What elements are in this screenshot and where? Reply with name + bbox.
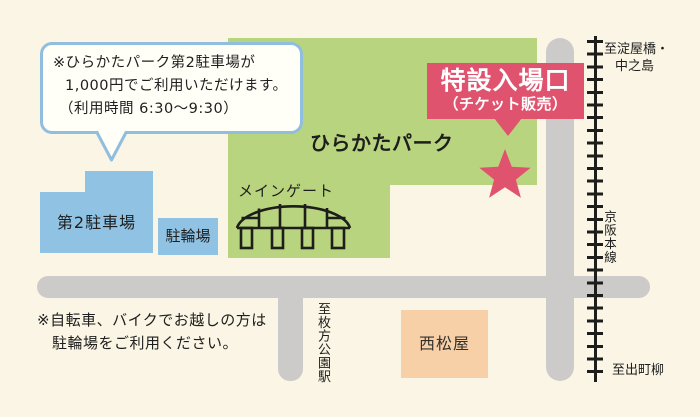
direction-north-line1: 至淀屋橋・	[604, 41, 669, 58]
bubble-line2: 1,000円でご利用いただけます。	[53, 75, 300, 98]
station-direction-label: 至枚方公園駅	[313, 302, 332, 383]
special-entrance-subtitle: （チケット販売）	[427, 96, 584, 113]
road-to-station	[278, 284, 303, 381]
direction-north-line2: 中之島	[604, 58, 669, 75]
bicycle-note-line1: ※自転車、バイクでお越しの方は	[37, 309, 267, 332]
special-entrance-badge: 特設入場口 （チケット販売）	[427, 63, 584, 119]
main-gate-label: メインゲート	[238, 180, 334, 201]
bicycle-note-text: ※自転車、バイクでお越しの方は 駐輪場をご利用ください。	[37, 309, 267, 355]
railway-name-label: 京阪本線	[600, 210, 619, 264]
store-name-label: 西松屋	[401, 310, 488, 378]
bicycle-parking-label: 駐輪場	[158, 218, 218, 255]
bubble-line3: （利用時間 6:30～9:30）	[53, 98, 300, 121]
parking-note-bubble: ※ひらかたパーク第2駐車場が 1,000円でご利用いただけます。 （利用時間 6…	[40, 42, 303, 134]
park-name-label: ひらかたパーク	[310, 127, 460, 156]
main-gate-icon	[231, 200, 357, 252]
railway-direction-south-label: 至出町柳	[612, 362, 664, 379]
map-canvas: 至淀屋橋・ 中之島 京阪本線 至出町柳 至枚方公園駅 ひらかたパーク メインゲー…	[0, 0, 700, 417]
special-entrance-title: 特設入場口	[427, 65, 584, 96]
parking-lot2-label: 第2駐車場	[40, 209, 153, 233]
parking-lot2-shape-top	[85, 171, 153, 193]
bubble-line1: ※ひらかたパーク第2駐車場が	[53, 52, 300, 75]
railway-direction-north-label: 至淀屋橋・ 中之島	[604, 41, 669, 75]
bicycle-note-line2: 駐輪場をご利用ください。	[37, 332, 267, 355]
